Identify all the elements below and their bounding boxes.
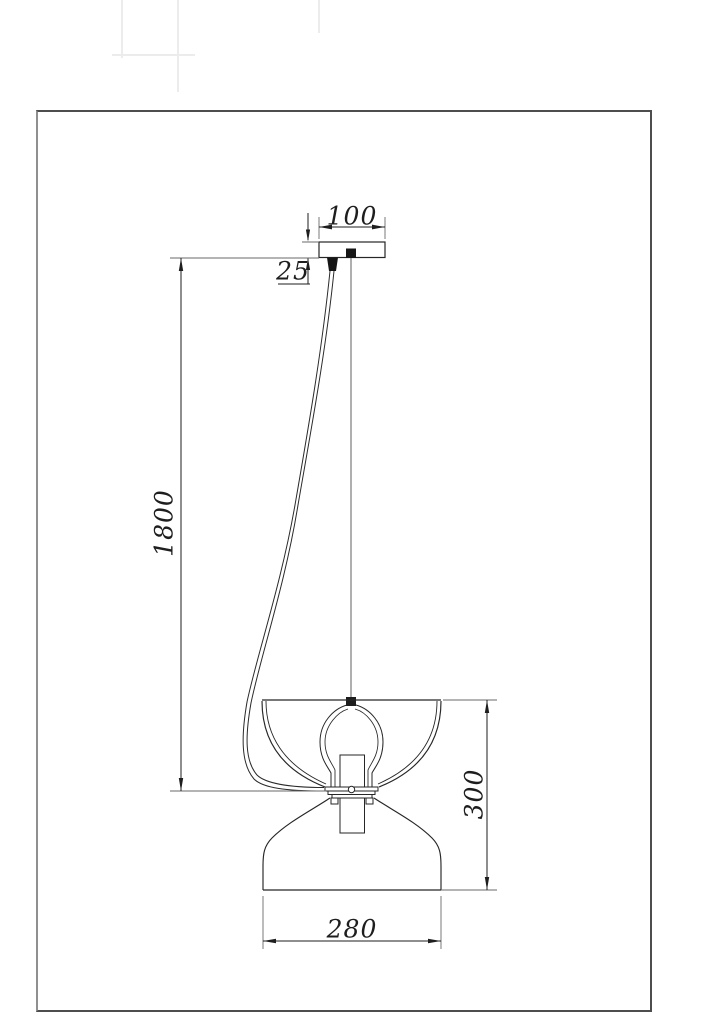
- suspension-length-dimension-label: 1800: [152, 489, 177, 557]
- drawing-sheet: 100 25 1800 300 280: [0, 0, 723, 1024]
- lower-shade-dome: [263, 798, 441, 890]
- light-bulb: [320, 705, 383, 787]
- cable-gland: [327, 258, 338, 272]
- ceiling-canopy: [319, 242, 385, 271]
- power-cable: [243, 271, 334, 791]
- lamp-technical-drawing: [0, 0, 723, 1024]
- bulb-nipple: [346, 697, 356, 706]
- cord-anchor: [346, 249, 356, 259]
- flange-tab-left: [331, 798, 338, 804]
- canopy-height-dimension-label: 25: [276, 259, 310, 284]
- shade-height-dimension-label: 300: [462, 769, 487, 820]
- shade-width-dimension-label: 280: [327, 917, 378, 942]
- suspension-cord: [346, 258, 356, 706]
- flange-bolt: [348, 786, 354, 792]
- dimension-1800: [170, 258, 326, 791]
- canopy-width-dimension-label: 100: [327, 204, 378, 229]
- upper-shade-bowl: [262, 700, 441, 787]
- collar-flange: [325, 786, 378, 804]
- flange-tab-right: [366, 798, 373, 804]
